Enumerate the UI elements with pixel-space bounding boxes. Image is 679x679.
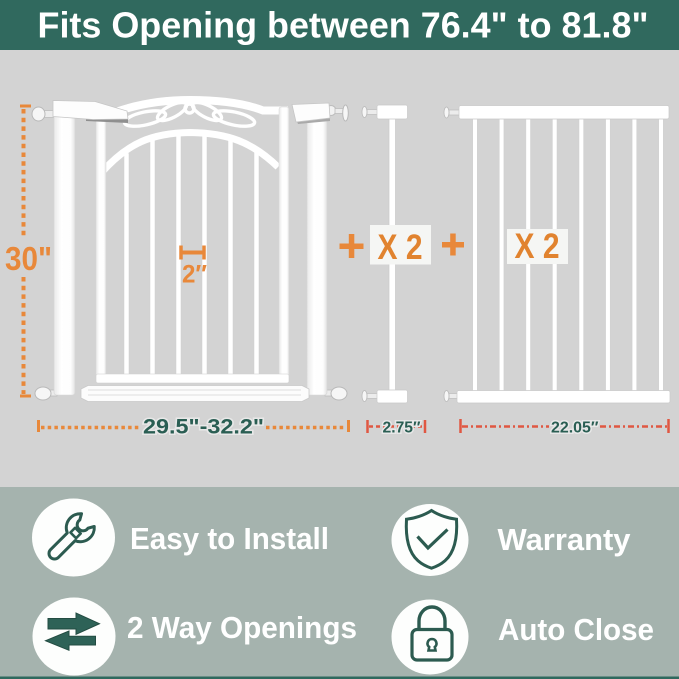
svg-text:Auto Close: Auto Close	[498, 612, 654, 647]
svg-text:2 Way Openings: 2 Way Openings	[127, 610, 357, 645]
svg-text:Easy to Install: Easy to Install	[130, 521, 329, 556]
svg-text:2″: 2″	[182, 261, 207, 289]
svg-text:29.5"-32.2": 29.5"-32.2"	[143, 416, 264, 439]
svg-text:X 2: X 2	[515, 227, 560, 266]
svg-text:X 2: X 2	[378, 228, 423, 267]
svg-text:30": 30"	[5, 240, 52, 277]
svg-text:2.75″: 2.75″	[383, 419, 421, 436]
svg-text:Fits Opening between 76.4" to: Fits Opening between 76.4" to 81.8"	[38, 4, 649, 45]
svg-text:Warranty: Warranty	[498, 522, 632, 557]
svg-text:22.05″: 22.05″	[551, 420, 599, 437]
